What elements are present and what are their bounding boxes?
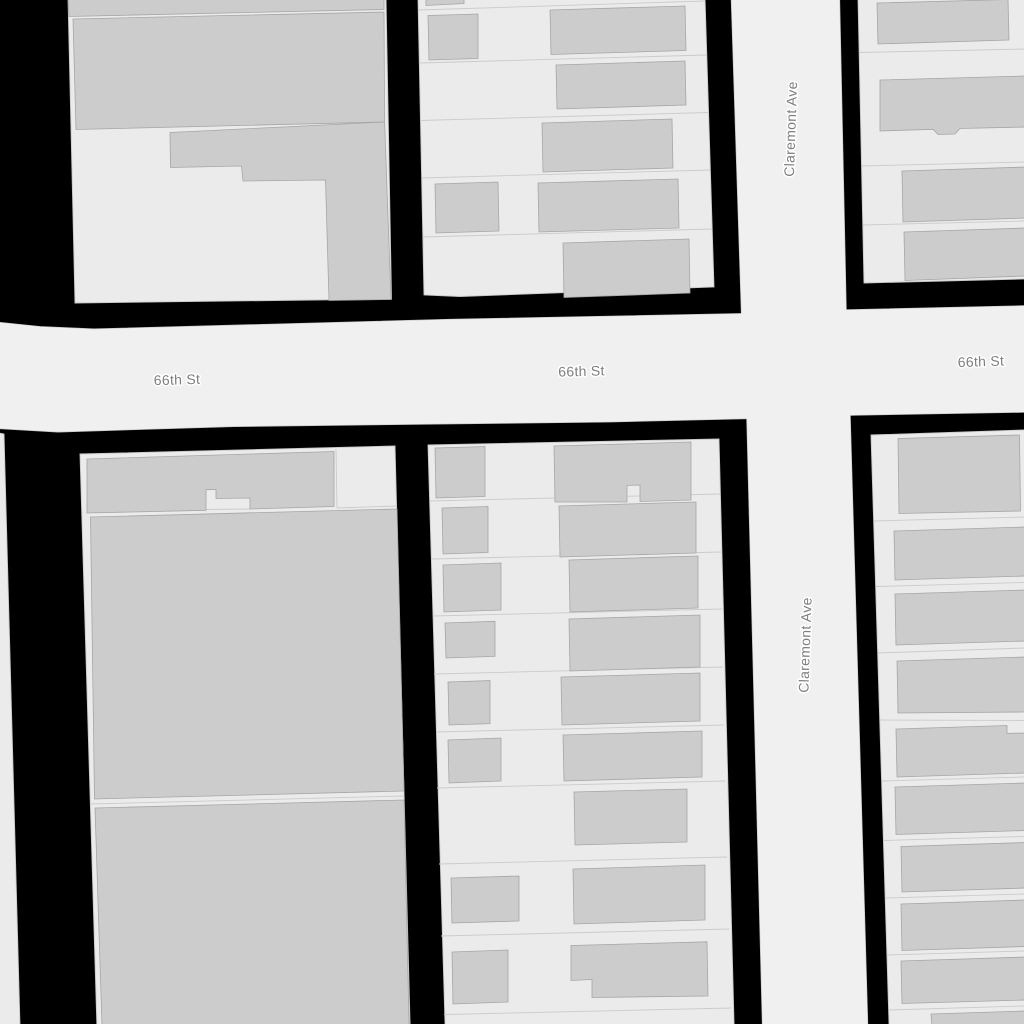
svg-text:66th St: 66th St <box>558 362 605 379</box>
svg-text:Claremont Ave: Claremont Ave <box>781 81 800 177</box>
svg-text:Claremont Ave: Claremont Ave <box>795 597 814 693</box>
svg-text:66th St: 66th St <box>154 371 201 388</box>
svg-text:66th St: 66th St <box>957 352 1004 370</box>
